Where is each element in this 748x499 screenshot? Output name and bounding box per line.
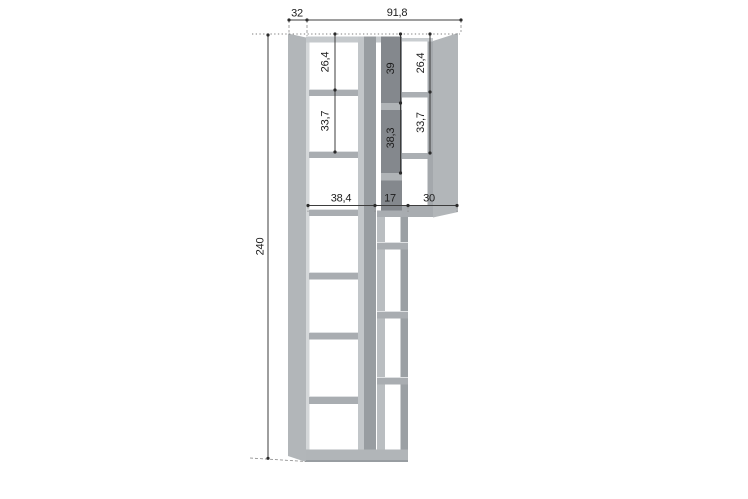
center-right-strip [401, 217, 409, 450]
dim-label-width-right: 30 [423, 193, 435, 205]
shelf [309, 210, 358, 216]
bottom-panel-edge [306, 460, 408, 462]
shelf [309, 333, 358, 340]
drawing-canvas: 32 91,8 240 26,4 33,7 [0, 0, 748, 499]
shelf-unit [288, 33, 458, 462]
dim-label-width-center: 17 [384, 193, 396, 205]
dimension-top-width: 91,8 [307, 7, 463, 32]
dim-label-left-top: 26,4 [320, 52, 332, 73]
center-left-strip [377, 217, 385, 450]
shelf [381, 173, 402, 181]
wing-top-sliver [402, 38, 433, 42]
wing-right-side-panel [433, 33, 458, 218]
shelf [377, 312, 408, 319]
dim-label-center-second: 38,3 [385, 128, 397, 149]
shelf [309, 397, 358, 404]
wing-bottom-panel [402, 205, 433, 217]
furniture-dimension-drawing: 32 91,8 240 26,4 33,7 [0, 0, 748, 499]
dim-label-center-top: 39 [385, 63, 397, 75]
dim-label-height: 240 [255, 238, 267, 256]
shelf [309, 90, 358, 96]
shelf [381, 103, 402, 110]
left-panel-front-edge [306, 38, 310, 462]
divider-panel-front [358, 37, 364, 459]
shelf [309, 273, 358, 280]
left-side-panel [288, 34, 306, 463]
dim-label-right-second: 33,7 [415, 112, 427, 133]
dim-label-left-second: 33,7 [320, 111, 332, 132]
dim-label-width-left: 38,4 [331, 193, 352, 205]
dim-label-width: 91,8 [387, 7, 408, 19]
center-cell-bg [385, 217, 401, 450]
dim-label-depth: 32 [291, 8, 303, 20]
center-column-lower [377, 211, 408, 450]
shelf [309, 152, 358, 158]
shelf [377, 378, 408, 385]
dim-label-right-top: 26,4 [415, 53, 427, 74]
divider-panel-side [364, 37, 376, 459]
left-column-shelves [309, 89, 358, 404]
shelf [377, 243, 408, 250]
dimension-top-depth: 32 [287, 8, 308, 37]
